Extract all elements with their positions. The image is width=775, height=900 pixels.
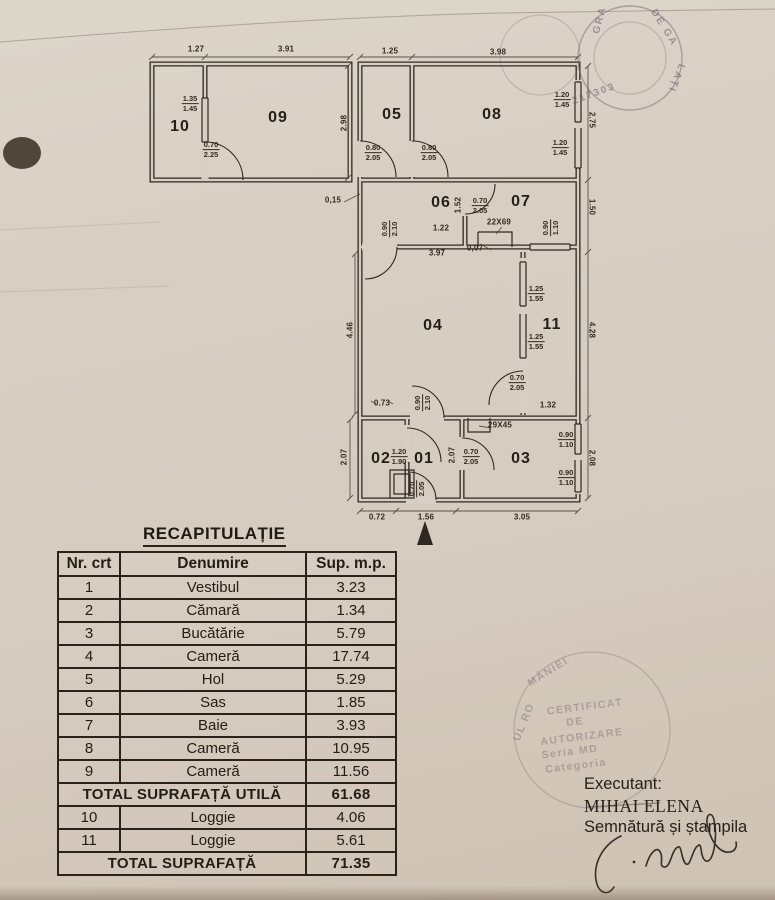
row-number-cell: 2 — [58, 599, 120, 622]
signature-caption: Semnătură și ștampila — [584, 817, 747, 839]
area-value-cell: 5.29 — [306, 668, 396, 691]
area-value-cell: 3.93 — [306, 714, 396, 737]
table-row: 3Bucătărie5.79 — [58, 622, 396, 645]
row-number-cell: 11 — [58, 829, 120, 852]
hole-punch-mark — [3, 137, 41, 169]
row-number-cell: 7 — [58, 714, 120, 737]
table-row: 9Cameră11.56 — [58, 760, 396, 783]
area-value-cell: 10.95 — [306, 737, 396, 760]
room-name-cell: Bucătărie — [120, 622, 306, 645]
total-value-cell: 61.68 — [306, 783, 396, 806]
room-name-cell: Loggie — [120, 806, 306, 829]
crease-line — [0, 222, 170, 292]
room-name-cell: Vestibul — [120, 576, 306, 599]
table-title: RECAPITULAȚIE — [143, 524, 286, 547]
executant-block: Executant: MIHAI ELENA Semnătură și ștam… — [584, 774, 747, 839]
area-value-cell: 17.74 — [306, 645, 396, 668]
walls — [152, 64, 578, 500]
area-value-cell: 3.23 — [306, 576, 396, 599]
column-header: Nr. crt — [58, 552, 120, 576]
wall-openings — [205, 80, 578, 500]
stamp-rings — [500, 6, 682, 808]
area-value-cell: 5.61 — [306, 829, 396, 852]
room-name-cell: Baie — [120, 714, 306, 737]
row-number-cell: 5 — [58, 668, 120, 691]
column-header: Denumire — [120, 552, 306, 576]
column-header: Sup. m.p. — [306, 552, 396, 576]
total-row: TOTAL SUPRAFAȚĂ71.35 — [58, 852, 396, 875]
room-name-cell: Loggie — [120, 829, 306, 852]
room-name-cell: Cameră — [120, 760, 306, 783]
table-row: 4Cameră17.74 — [58, 645, 396, 668]
table-row: 1Vestibul3.23 — [58, 576, 396, 599]
executant-name: MIHAI ELENA — [584, 796, 747, 818]
area-value-cell: 5.79 — [306, 622, 396, 645]
table-row: 11Loggie5.61 — [58, 829, 396, 852]
room-name-cell: Cămară — [120, 599, 306, 622]
row-number-cell: 10 — [58, 806, 120, 829]
row-number-cell: 8 — [58, 737, 120, 760]
north-arrow-icon — [417, 521, 433, 545]
room-name-cell: Sas — [120, 691, 306, 714]
table-row: 10Loggie4.06 — [58, 806, 396, 829]
executant-label: Executant: — [584, 774, 747, 796]
row-number-cell: 3 — [58, 622, 120, 645]
area-value-cell: 11.56 — [306, 760, 396, 783]
recap-table: Nr. crtDenumireSup. m.p. 1Vestibul3.232C… — [57, 551, 397, 876]
table-row: 6Sas1.85 — [58, 691, 396, 714]
recap-section: RECAPITULAȚIE Nr. crtDenumireSup. m.p. 1… — [57, 524, 395, 876]
scanned-floorplan-document: 10090508060704110201031.273.911.253.982.… — [0, 0, 775, 900]
total-row: TOTAL SUPRAFAȚĂ UTILĂ61.68 — [58, 783, 396, 806]
row-number-cell: 1 — [58, 576, 120, 599]
room-name-cell: Cameră — [120, 645, 306, 668]
header-row: Nr. crtDenumireSup. m.p. — [58, 552, 396, 576]
area-value-cell: 1.85 — [306, 691, 396, 714]
row-number-cell: 6 — [58, 691, 120, 714]
table-row: 8Cameră10.95 — [58, 737, 396, 760]
area-value-cell: 1.34 — [306, 599, 396, 622]
table-row: 2Cămară1.34 — [58, 599, 396, 622]
page-bottom-shadow — [0, 886, 775, 900]
room-name-cell: Hol — [120, 668, 306, 691]
table-row: 7Baie3.93 — [58, 714, 396, 737]
row-number-cell: 4 — [58, 645, 120, 668]
total-label-cell: TOTAL SUPRAFAȚĂ UTILĂ — [58, 783, 306, 806]
row-number-cell: 9 — [58, 760, 120, 783]
area-value-cell: 4.06 — [306, 806, 396, 829]
table-row: 5Hol5.29 — [58, 668, 396, 691]
door-arcs — [205, 141, 523, 500]
room-name-cell: Cameră — [120, 737, 306, 760]
total-value-cell: 71.35 — [306, 852, 396, 875]
total-label-cell: TOTAL SUPRAFAȚĂ — [58, 852, 306, 875]
